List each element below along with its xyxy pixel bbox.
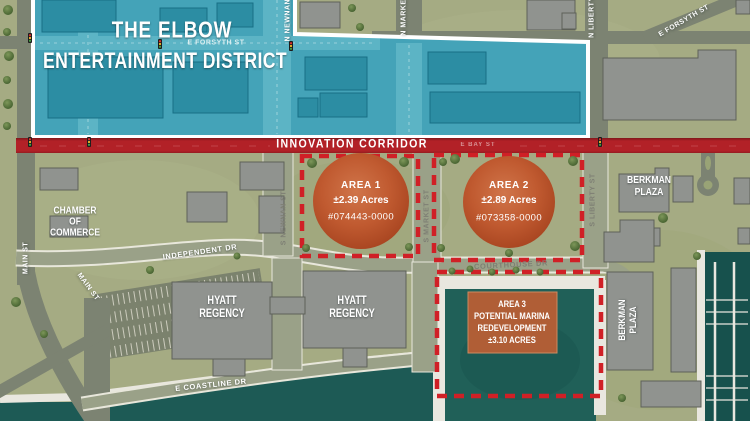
street-label-s-market: S MARKET ST <box>424 190 431 243</box>
area3-label: AREA 3 POTENTIAL MARINA REDEVELOPMENT ±3… <box>474 298 550 346</box>
site-map: THE ELBOW ENTERTAINMENT DISTRICT INNOVAT… <box>0 0 750 421</box>
chamber-of-commerce-label: CHAMBER OF COMMERCE <box>50 206 100 239</box>
district-title-line2: ENTERTAINMENT DISTRICT <box>43 50 287 72</box>
street-label-e-forsyth-west: E FORSYTH ST <box>188 40 245 47</box>
district-title-line1: THE ELBOW <box>112 19 233 42</box>
area1-name: AREA 1 <box>341 181 381 191</box>
area2-parcel-id: #073358-0000 <box>476 213 542 223</box>
street-label-main-west: MAIN ST <box>23 242 30 274</box>
area3-line2: POTENTIAL MARINA <box>474 310 550 322</box>
area2-size: ±2.89 Acres <box>481 196 536 206</box>
street-label-e-bay: E BAY ST <box>460 142 495 148</box>
innovation-corridor-label: INNOVATION CORRIDOR <box>276 139 428 151</box>
street-label-n-liberty: N LIBERTY ST <box>589 0 596 38</box>
berkman-plaza-tower-label: BERKMAN PLAZA <box>617 299 639 340</box>
berkman-plaza-north-label: BERKMAN PLAZA <box>627 174 671 198</box>
area2-name: AREA 2 <box>489 181 529 191</box>
hyatt-regency-east-label: HYATT REGENCY <box>329 295 375 321</box>
marina-water <box>704 252 750 421</box>
street-label-n-market: N MARKET ST <box>401 0 408 36</box>
area1-parcel-id: #074443-0000 <box>328 212 394 222</box>
area1-size: ±2.39 Acres <box>333 196 388 206</box>
street-label-s-liberty: S LIBERTY ST <box>590 173 597 226</box>
area3-line4: ±3.10 ACRES <box>474 334 550 346</box>
area3-line3: REDEVELOPMENT <box>474 322 550 334</box>
hyatt-regency-west-label: HYATT REGENCY <box>199 295 245 321</box>
street-label-s-newnan: S NEWNAN ST <box>281 191 288 246</box>
street-label-n-newnan: N NEWNAN ST <box>285 0 292 41</box>
apartment-building <box>671 268 696 372</box>
area3-name: AREA 3 <box>474 298 550 310</box>
